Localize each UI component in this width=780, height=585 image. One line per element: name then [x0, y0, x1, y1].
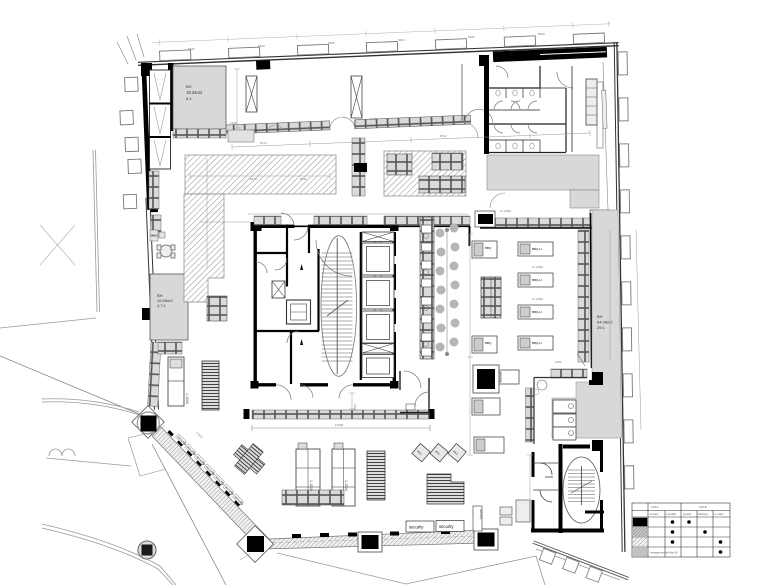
svg-text:security: security	[479, 509, 483, 520]
svg-text:w/ duct: w/ duct	[650, 512, 658, 516]
svg-text:1400: 1400	[555, 360, 562, 364]
svg-text:6:1: 6:1	[186, 96, 192, 101]
svg-text:5400: 5400	[258, 44, 265, 48]
svg-text:19.24m2: 19.24m2	[186, 90, 203, 95]
svg-text:1500: 1500	[353, 404, 357, 411]
svg-text:security: security	[409, 525, 424, 530]
svg-text:(1-1400): (1-1400)	[500, 209, 511, 213]
svg-text:5474: 5474	[260, 141, 267, 145]
svg-text:4.7:1: 4.7:1	[157, 303, 167, 308]
svg-text:1-1500: 1-1500	[344, 480, 348, 491]
svg-text:5400: 5400	[538, 32, 545, 36]
svg-text:5400: 5400	[328, 41, 335, 45]
svg-text:BBQ: BBQ	[485, 246, 492, 250]
svg-text:1-1500: 1-1500	[185, 393, 189, 404]
svg-text:1-1500: 1-1500	[309, 480, 313, 491]
svg-text:BBQ-H: BBQ-H	[532, 341, 542, 345]
svg-text:w.point: w.point	[683, 512, 691, 516]
svg-text:BBQ-H: BBQ-H	[532, 310, 542, 314]
svg-text:14400: 14400	[335, 423, 344, 427]
svg-text:BBQ: BBQ	[485, 341, 492, 345]
svg-text:5400: 5400	[398, 38, 405, 42]
svg-text:1400: 1400	[370, 117, 377, 121]
svg-text:(1-1400): (1-1400)	[532, 265, 543, 269]
svg-text:BBQ-H: BBQ-H	[532, 278, 542, 282]
svg-text:Arrangement by Mod W: Arrangement by Mod W	[650, 551, 678, 555]
svg-text:CAT-B: CAT-B	[699, 505, 707, 509]
svg-text:s.w.table: s.w.table	[666, 512, 677, 516]
svg-text:w. carts: w. carts	[715, 512, 724, 516]
svg-text:5400: 5400	[468, 35, 475, 39]
svg-text:(1-1400): (1-1400)	[532, 297, 543, 301]
svg-text:security: security	[439, 524, 454, 529]
svg-text:BH: BH	[186, 84, 192, 89]
svg-text:8742: 8742	[440, 134, 447, 138]
svg-text:8742: 8742	[300, 177, 307, 181]
svg-text:9474: 9474	[250, 177, 257, 181]
svg-text:BBQ-H: BBQ-H	[532, 247, 542, 251]
svg-text:64.06m2: 64.06m2	[597, 320, 613, 325]
svg-text:BH: BH	[597, 314, 603, 319]
svg-text:shelving: shelving	[698, 512, 708, 516]
svg-text:CAT-A: CAT-A	[651, 505, 659, 509]
svg-text:5400: 5400	[188, 47, 195, 51]
svg-text:1340: 1340	[230, 121, 237, 125]
svg-text:25:1: 25:1	[597, 325, 606, 330]
